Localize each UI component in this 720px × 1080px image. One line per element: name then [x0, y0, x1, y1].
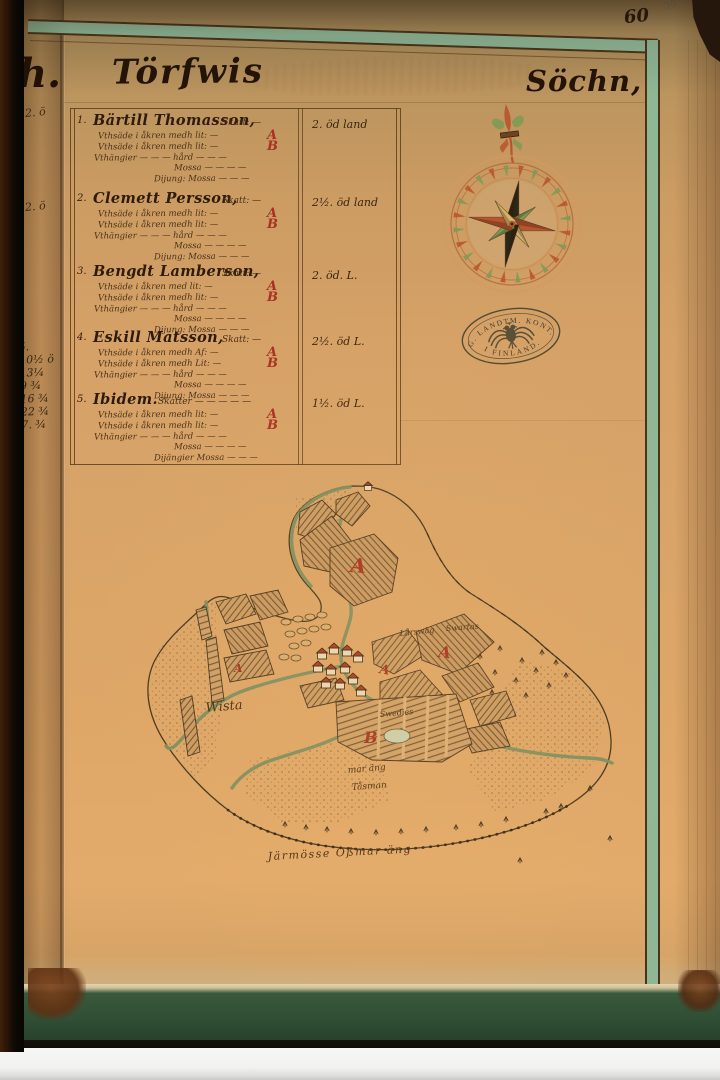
map-label: Järmösse Oßmar äng [265, 842, 412, 863]
leather-scrap-right [678, 970, 720, 1012]
plot-letter: A [348, 553, 367, 578]
leather-scrap-left [28, 968, 86, 1020]
pond [384, 729, 410, 743]
left-binding [0, 0, 24, 1052]
village-map: A A A B A Wista mar äng Tåsman Järmösse … [0, 0, 720, 1080]
plot-letter: B [363, 728, 378, 747]
map-label: Wista [205, 698, 243, 716]
photo-white-strip [0, 1048, 720, 1080]
book-photo: { "page": { "folio": "60", "pencil_note"… [0, 0, 720, 1080]
plot-letter: A [233, 662, 243, 675]
